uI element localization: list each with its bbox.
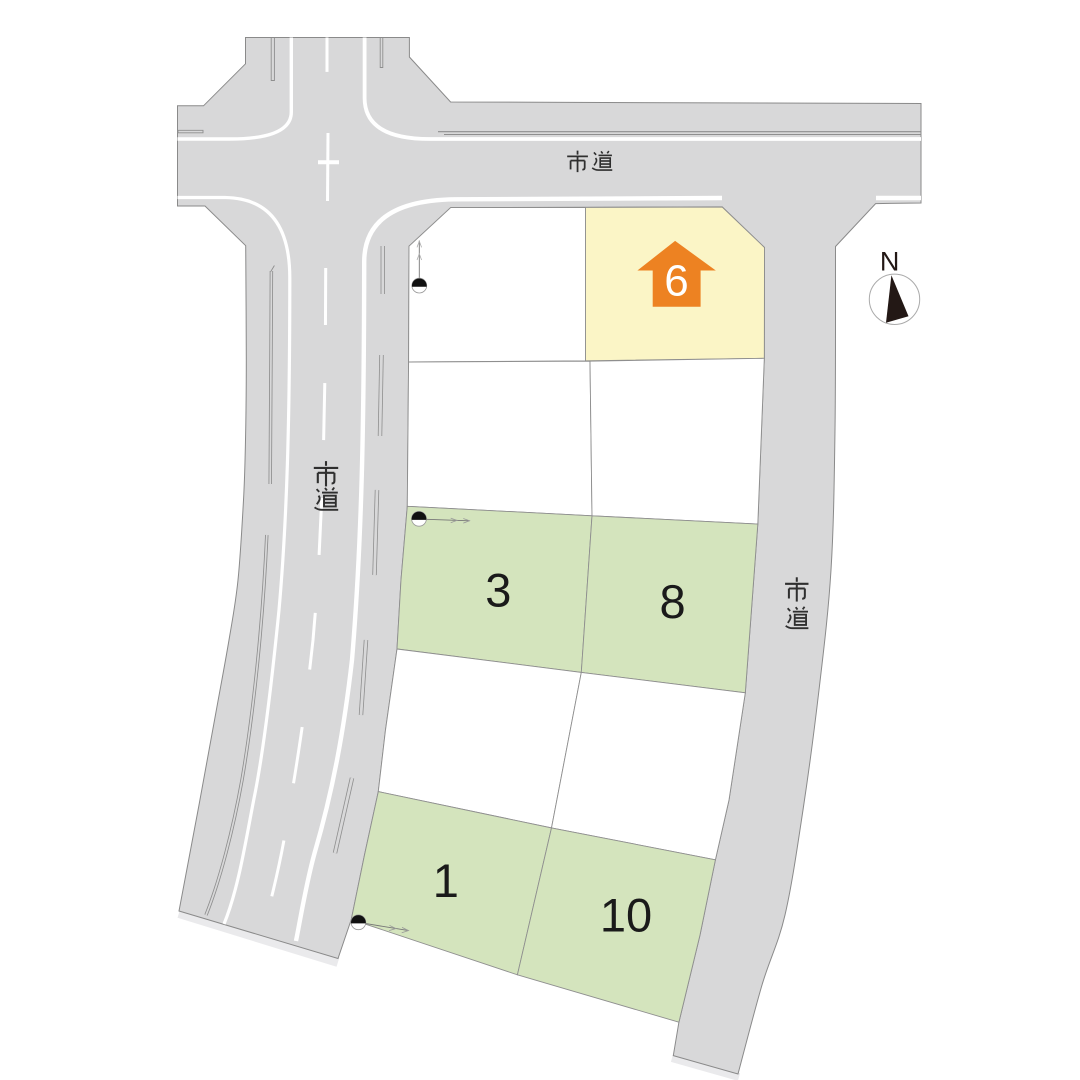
svg-text:10: 10 xyxy=(600,889,652,942)
svg-text:8: 8 xyxy=(660,575,686,628)
svg-text:N: N xyxy=(880,247,900,277)
svg-text:3: 3 xyxy=(485,564,511,617)
svg-text:1: 1 xyxy=(433,854,459,907)
svg-text:6: 6 xyxy=(664,257,688,306)
